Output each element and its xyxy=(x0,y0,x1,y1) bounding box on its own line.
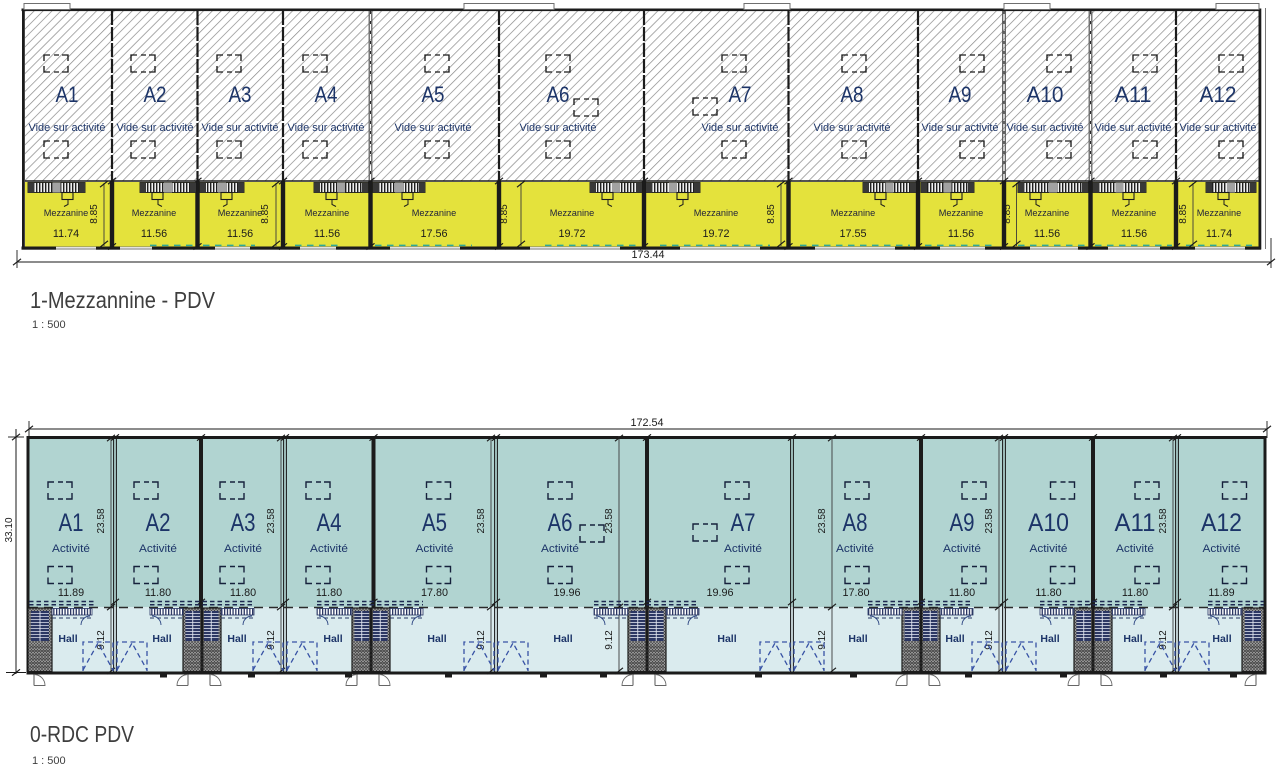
svg-text:Activité: Activité xyxy=(416,543,454,555)
svg-text:Hall: Hall xyxy=(227,633,246,645)
svg-text:8.85: 8.85 xyxy=(1002,204,1013,224)
svg-text:Vide sur activité: Vide sur activité xyxy=(117,122,194,134)
svg-text:A4: A4 xyxy=(315,82,338,107)
svg-text:Vide sur activité: Vide sur activité xyxy=(288,122,365,134)
svg-text:Activité: Activité xyxy=(943,543,981,555)
svg-text:17.80: 17.80 xyxy=(842,587,869,599)
svg-text:Activité: Activité xyxy=(1030,543,1068,555)
svg-text:11.89: 11.89 xyxy=(58,587,84,599)
svg-text:19.72: 19.72 xyxy=(558,228,585,240)
svg-text:Mezzanine: Mezzanine xyxy=(1112,208,1156,218)
svg-text:8.85: 8.85 xyxy=(499,204,510,224)
svg-text:Hall: Hall xyxy=(427,633,446,645)
svg-text:A10: A10 xyxy=(1028,509,1069,537)
svg-text:Mezzanine: Mezzanine xyxy=(412,208,456,218)
svg-text:173.44: 173.44 xyxy=(631,249,664,261)
svg-text:A10: A10 xyxy=(1027,82,1064,107)
svg-text:Hall: Hall xyxy=(553,633,572,645)
svg-text:23.58: 23.58 xyxy=(266,508,277,533)
svg-text:23.58: 23.58 xyxy=(476,508,487,533)
svg-text:11.80: 11.80 xyxy=(1122,587,1148,599)
svg-text:Mezzanine: Mezzanine xyxy=(550,208,594,218)
svg-text:Vide sur activité: Vide sur activité xyxy=(922,122,999,134)
svg-text:A5: A5 xyxy=(422,509,447,537)
svg-text:A8: A8 xyxy=(841,82,864,107)
svg-text:11.56: 11.56 xyxy=(141,228,167,240)
svg-text:Hall: Hall xyxy=(945,633,964,645)
svg-text:Vide sur activité: Vide sur activité xyxy=(29,122,106,134)
svg-text:Mezzanine: Mezzanine xyxy=(132,208,176,218)
svg-text:A5: A5 xyxy=(422,82,445,107)
svg-text:11.80: 11.80 xyxy=(230,587,256,599)
svg-text:9.12: 9.12 xyxy=(817,630,828,650)
svg-text:11.56: 11.56 xyxy=(1121,228,1147,240)
svg-text:9.12: 9.12 xyxy=(266,630,277,650)
svg-text:Activité: Activité xyxy=(1116,543,1154,555)
svg-text:A9: A9 xyxy=(950,509,975,537)
svg-text:A3: A3 xyxy=(231,509,256,537)
svg-text:17.56: 17.56 xyxy=(420,228,447,240)
svg-text:Mezzanine: Mezzanine xyxy=(939,208,983,218)
svg-text:Hall: Hall xyxy=(848,633,867,645)
svg-text:11.56: 11.56 xyxy=(314,228,340,240)
svg-text:23.58: 23.58 xyxy=(604,508,615,533)
svg-text:Mezzanine: Mezzanine xyxy=(44,208,88,218)
svg-text:Mezzanine: Mezzanine xyxy=(1025,208,1069,218)
svg-text:Activité: Activité xyxy=(1203,543,1241,555)
svg-text:0-RDC PDV: 0-RDC PDV xyxy=(30,721,135,747)
svg-text:8.85: 8.85 xyxy=(89,204,100,224)
svg-text:A11: A11 xyxy=(1115,509,1156,537)
svg-text:11.80: 11.80 xyxy=(316,587,342,599)
svg-text:Vide sur activité: Vide sur activité xyxy=(1007,122,1084,134)
svg-text:Activité: Activité xyxy=(52,543,90,555)
svg-text:Vide sur activité: Vide sur activité xyxy=(395,122,472,134)
svg-text:11.56: 11.56 xyxy=(1034,228,1060,240)
svg-text:11.74: 11.74 xyxy=(53,228,79,240)
svg-text:11.89: 11.89 xyxy=(1208,587,1234,599)
svg-text:19.96: 19.96 xyxy=(553,587,580,599)
svg-text:A6: A6 xyxy=(548,509,573,537)
svg-text:Activité: Activité xyxy=(310,543,348,555)
svg-text:19.96: 19.96 xyxy=(706,587,733,599)
svg-text:8.85: 8.85 xyxy=(1178,204,1189,224)
svg-text:8.85: 8.85 xyxy=(766,204,777,224)
svg-text:Activité: Activité xyxy=(724,543,762,555)
svg-text:Mezzanine: Mezzanine xyxy=(1197,208,1241,218)
svg-text:11.56: 11.56 xyxy=(948,228,974,240)
svg-text:Activité: Activité xyxy=(224,543,262,555)
svg-text:Mezzanine: Mezzanine xyxy=(218,208,262,218)
svg-text:1-Mezzannine - PDV: 1-Mezzannine - PDV xyxy=(30,287,216,313)
svg-text:1 : 500: 1 : 500 xyxy=(32,319,66,331)
svg-text:Vide sur activité: Vide sur activité xyxy=(702,122,779,134)
svg-text:Hall: Hall xyxy=(58,633,77,645)
svg-text:11.80: 11.80 xyxy=(1035,587,1061,599)
svg-text:Mezzanine: Mezzanine xyxy=(831,208,875,218)
svg-text:33.10: 33.10 xyxy=(4,517,15,542)
svg-text:A3: A3 xyxy=(229,82,252,107)
svg-text:23.58: 23.58 xyxy=(984,508,995,533)
svg-text:11.74: 11.74 xyxy=(1206,228,1232,240)
svg-text:Mezzanine: Mezzanine xyxy=(305,208,349,218)
svg-text:17.55: 17.55 xyxy=(839,228,866,240)
svg-text:A1: A1 xyxy=(59,509,84,537)
svg-text:Activité: Activité xyxy=(139,543,177,555)
svg-text:Hall: Hall xyxy=(1040,633,1059,645)
svg-text:23.58: 23.58 xyxy=(817,508,828,533)
svg-text:Vide sur activité: Vide sur activité xyxy=(814,122,891,134)
svg-text:11.80: 11.80 xyxy=(145,587,171,599)
svg-text:A7: A7 xyxy=(729,82,752,107)
svg-text:9.12: 9.12 xyxy=(604,630,615,650)
svg-text:A6: A6 xyxy=(547,82,570,107)
svg-text:Hall: Hall xyxy=(1212,633,1231,645)
svg-text:Vide sur activité: Vide sur activité xyxy=(1095,122,1172,134)
svg-text:11.56: 11.56 xyxy=(227,228,253,240)
svg-text:11.80: 11.80 xyxy=(949,587,975,599)
svg-text:A1: A1 xyxy=(56,82,79,107)
svg-text:Hall: Hall xyxy=(323,633,342,645)
svg-text:A11: A11 xyxy=(1115,82,1152,107)
svg-text:Hall: Hall xyxy=(717,633,736,645)
svg-text:Hall: Hall xyxy=(152,633,171,645)
svg-text:17.80: 17.80 xyxy=(421,587,448,599)
svg-text:A7: A7 xyxy=(731,509,756,537)
svg-text:A4: A4 xyxy=(317,509,342,537)
svg-text:Vide sur activité: Vide sur activité xyxy=(202,122,279,134)
svg-text:A2: A2 xyxy=(144,82,167,107)
svg-text:A2: A2 xyxy=(146,509,171,537)
svg-text:172.54: 172.54 xyxy=(630,417,663,429)
svg-text:19.72: 19.72 xyxy=(702,228,729,240)
svg-text:9.12: 9.12 xyxy=(1158,630,1169,650)
svg-text:23.58: 23.58 xyxy=(96,508,107,533)
svg-text:A9: A9 xyxy=(949,82,972,107)
svg-text:Activité: Activité xyxy=(836,543,874,555)
svg-text:Hall: Hall xyxy=(1123,633,1142,645)
svg-text:23.58: 23.58 xyxy=(1158,508,1169,533)
svg-text:8.85: 8.85 xyxy=(260,204,271,224)
svg-text:9.12: 9.12 xyxy=(96,630,107,650)
svg-text:Vide sur activité: Vide sur activité xyxy=(520,122,597,134)
svg-text:1 : 500: 1 : 500 xyxy=(32,755,66,767)
svg-text:Mezzanine: Mezzanine xyxy=(694,208,738,218)
svg-text:A12: A12 xyxy=(1201,509,1242,537)
svg-text:Activité: Activité xyxy=(541,543,579,555)
svg-text:A8: A8 xyxy=(843,509,868,537)
svg-text:A12: A12 xyxy=(1200,82,1237,107)
svg-text:Vide sur activité: Vide sur activité xyxy=(1180,122,1257,134)
